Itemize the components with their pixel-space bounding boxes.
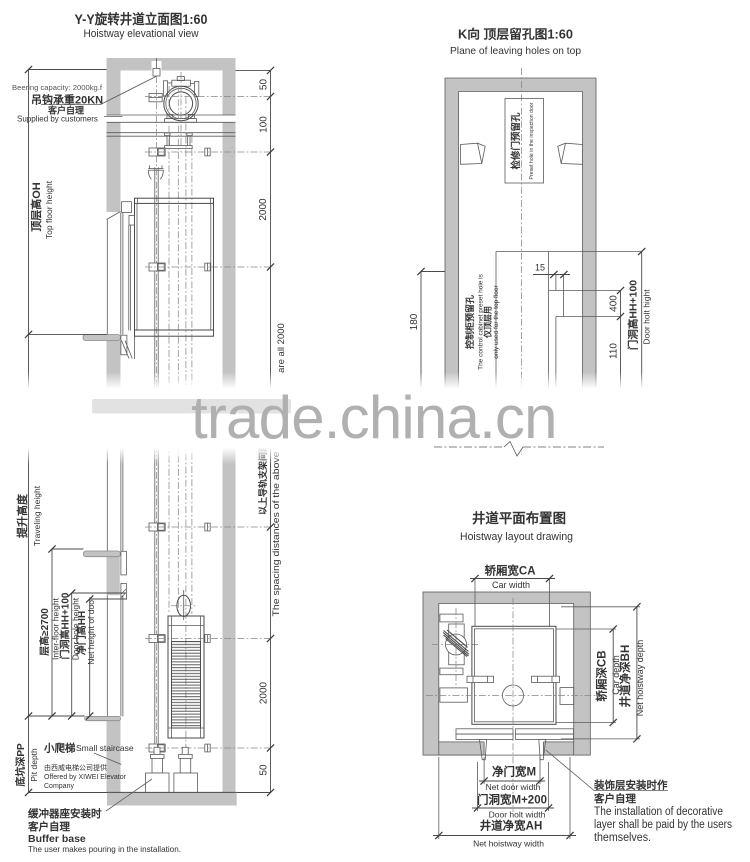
svg-text:100: 100 (259, 116, 270, 133)
svg-text:Y-Y旋转井道立面图1:60: Y-Y旋转井道立面图1:60 (75, 11, 208, 27)
svg-text:顶层高OH: 顶层高OH (29, 182, 43, 232)
svg-text:trade.china.cn: trade.china.cn (191, 384, 557, 451)
svg-text:15: 15 (535, 263, 545, 273)
svg-text:Plane of leaving holes on top: Plane of leaving holes on top (450, 45, 581, 57)
svg-text:are all 2000: are all 2000 (276, 323, 287, 373)
svg-text:净门宽M: 净门宽M (492, 765, 536, 779)
svg-text:Supplied by customers: Supplied by customers (17, 115, 98, 124)
svg-text:themselves.: themselves. (594, 832, 651, 844)
svg-text:客户自理: 客户自理 (27, 820, 70, 833)
svg-text:轿厢深CB: 轿厢深CB (595, 650, 609, 701)
svg-text:提升高度: 提升高度 (15, 493, 29, 538)
svg-text:客户自理: 客户自理 (593, 792, 636, 805)
svg-text:50: 50 (259, 79, 270, 91)
svg-text:180: 180 (409, 313, 420, 330)
svg-text:The user makes pouring in the: The user makes pouring in the installati… (28, 844, 181, 854)
svg-text:2000: 2000 (258, 198, 269, 221)
svg-text:底坑深PP: 底坑深PP (14, 743, 27, 787)
svg-text:Small staircase: Small staircase (76, 743, 134, 753)
svg-text:layer shall be paid by the use: layer shall be paid by the users (594, 819, 732, 831)
svg-text:层高≥2700: 层高≥2700 (38, 608, 51, 656)
svg-text:Net hoistway width: Net hoistway width (473, 839, 544, 849)
svg-text:井道平面布置图: 井道平面布置图 (472, 510, 566, 526)
svg-text:控制柜预留孔: 控制柜预留孔 (464, 295, 475, 349)
svg-text:Car width: Car width (492, 580, 530, 590)
svg-text:Net hoistway depth: Net hoistway depth (635, 640, 645, 717)
svg-text:Inter-floor height: Inter-floor height (51, 597, 61, 660)
svg-text:Door holt hight: Door holt hight (642, 289, 652, 345)
svg-text:Top floor height: Top floor height (44, 180, 54, 239)
svg-text:Offered by XIWEI Elevator: Offered by XIWEI Elevator (44, 774, 127, 781)
svg-text:400: 400 (609, 295, 620, 312)
svg-text:only used for the top floor: only used for the top floor (493, 284, 500, 358)
svg-text:Hoistway layout drawing: Hoistway layout drawing (460, 531, 573, 543)
svg-text:50: 50 (259, 764, 270, 776)
svg-text:检修门预留孔: 检修门预留孔 (510, 112, 522, 170)
svg-text:2000: 2000 (259, 681, 270, 704)
svg-text:装饰层安装时作: 装饰层安装时作 (593, 779, 668, 792)
svg-text:The installation of decorative: The installation of decorative (594, 806, 723, 818)
svg-text:井道净宽AH: 井道净宽AH (480, 819, 543, 833)
svg-text:门洞宽M+200: 门洞宽M+200 (477, 793, 547, 807)
svg-text:由西威电梯公司提供: 由西威电梯公司提供 (44, 763, 107, 772)
svg-text:Net door width: Net door width (486, 782, 541, 792)
svg-text:The spacing distances of the a: The spacing distances of the above (271, 452, 282, 617)
svg-text:小爬梯: 小爬梯 (43, 742, 76, 755)
svg-text:仅顶层用: 仅顶层用 (483, 306, 493, 339)
svg-text:Traveling height: Traveling height (32, 485, 42, 546)
svg-text:缓冲器座安装时: 缓冲器座安装时 (27, 807, 102, 820)
svg-text:Net height of door: Net height of door (86, 597, 96, 665)
svg-text:Company: Company (44, 783, 74, 790)
svg-text:门洞高HH+100: 门洞高HH+100 (627, 280, 640, 350)
svg-text:井道净深BH: 井道净深BH (618, 645, 632, 708)
svg-text:Pit depth: Pit depth (29, 748, 39, 782)
svg-text:110: 110 (609, 343, 620, 359)
svg-text:Hoistway elevational view: Hoistway elevational view (84, 28, 199, 40)
svg-text:Door holt width: Door holt width (489, 810, 546, 820)
svg-text:Beering capacity: 2000kg.f: Beering capacity: 2000kg.f (12, 83, 103, 92)
svg-text:K向 顶层留孔图1:60: K向 顶层留孔图1:60 (458, 27, 573, 42)
svg-text:轿厢宽CA: 轿厢宽CA (484, 564, 535, 578)
svg-text:Preset hole in the inspection: Preset hole in the inspection door (529, 102, 535, 179)
